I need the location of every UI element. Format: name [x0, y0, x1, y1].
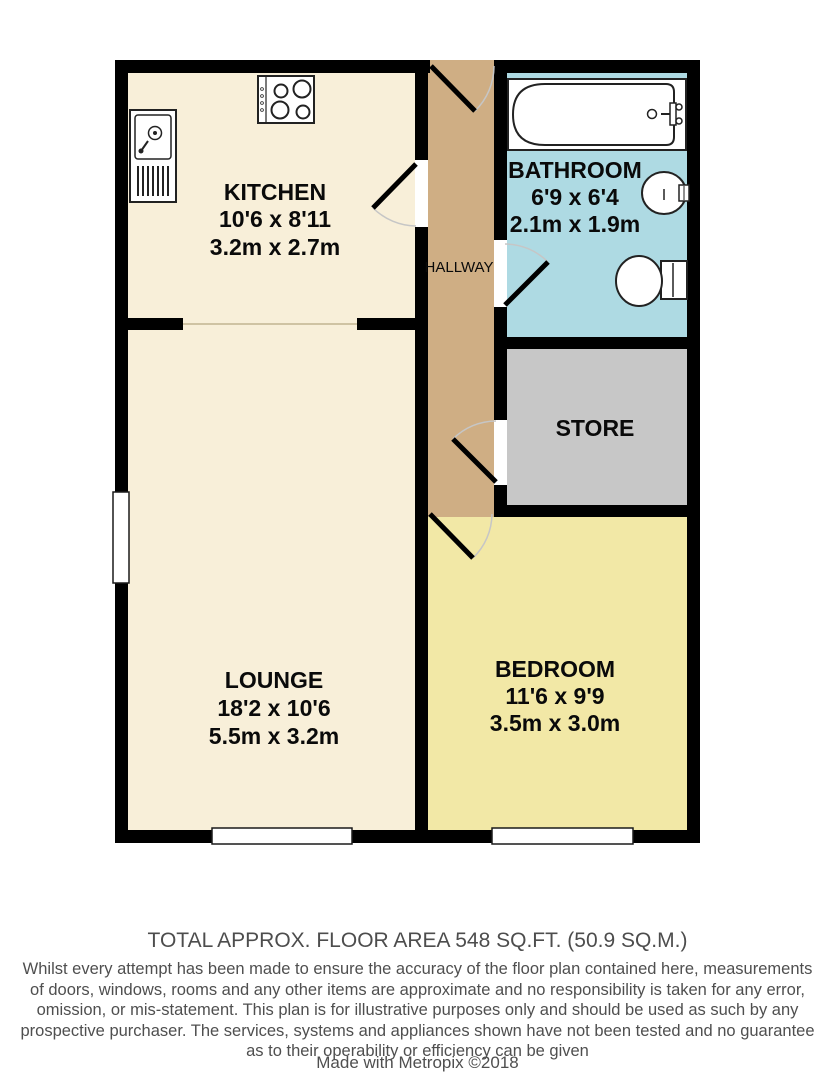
kitchen-label: KITCHEN	[224, 179, 326, 205]
lounge-dims-ft: 18'2 x 10'6	[217, 695, 330, 721]
wall-segment	[115, 60, 128, 843]
disclaimer-line: of doors, windows, rooms and any other i…	[0, 980, 835, 1001]
disclaimer-text: Whilst every attempt has been made to en…	[0, 959, 835, 1062]
wall-segment	[687, 60, 700, 843]
disclaimer-line: Whilst every attempt has been made to en…	[0, 959, 835, 980]
sink-icon	[130, 110, 176, 202]
bathroom-label: BATHROOM	[508, 157, 642, 183]
wall-segment	[415, 60, 428, 160]
disclaimer-line: prospective purchaser. The services, sys…	[0, 1021, 835, 1042]
kitchen-dims-m: 3.2m x 2.7m	[210, 234, 340, 260]
store-label: STORE	[556, 415, 635, 441]
credit-text: Made with Metropix ©2018	[0, 1053, 835, 1073]
bedroom-label: BEDROOM	[495, 656, 615, 682]
bathtub-icon	[508, 79, 686, 150]
hob-icon	[258, 76, 314, 123]
wall-segment	[494, 337, 700, 349]
total-area-text: TOTAL APPROX. FLOOR AREA 548 SQ.FT. (50.…	[0, 929, 835, 953]
wall-segment	[494, 505, 700, 517]
wall-segment	[494, 60, 700, 73]
wall-segment	[115, 318, 183, 330]
wall-segment	[415, 227, 428, 830]
bathroom-dims-m: 2.1m x 1.9m	[510, 211, 640, 237]
lounge-window	[212, 828, 352, 844]
disclaimer-line: omission, or mis-statement. This plan is…	[0, 1000, 835, 1021]
bedroom-window	[492, 828, 633, 844]
wall-segment	[115, 60, 430, 73]
bedroom-dims-m: 3.5m x 3.0m	[490, 710, 620, 736]
bedroom-dims-ft: 11'6 x 9'9	[505, 683, 604, 709]
lounge-dims-m: 5.5m x 3.2m	[209, 723, 339, 749]
wall-segment	[494, 60, 507, 240]
bathroom-dims-ft: 6'9 x 6'4	[531, 184, 619, 210]
lounge-label: LOUNGE	[225, 667, 323, 693]
toilet-icon	[616, 256, 687, 306]
kitchen-dims-ft: 10'6 x 8'11	[219, 206, 331, 232]
floor-plan: KITCHEN 10'6 x 8'11 3.2m x 2.7m BATHROOM…	[0, 0, 835, 1080]
hallway-label: HALLWAY	[425, 259, 494, 276]
wall-segment	[494, 307, 507, 420]
lounge-side-window	[113, 492, 129, 583]
wall-segment	[357, 318, 428, 330]
